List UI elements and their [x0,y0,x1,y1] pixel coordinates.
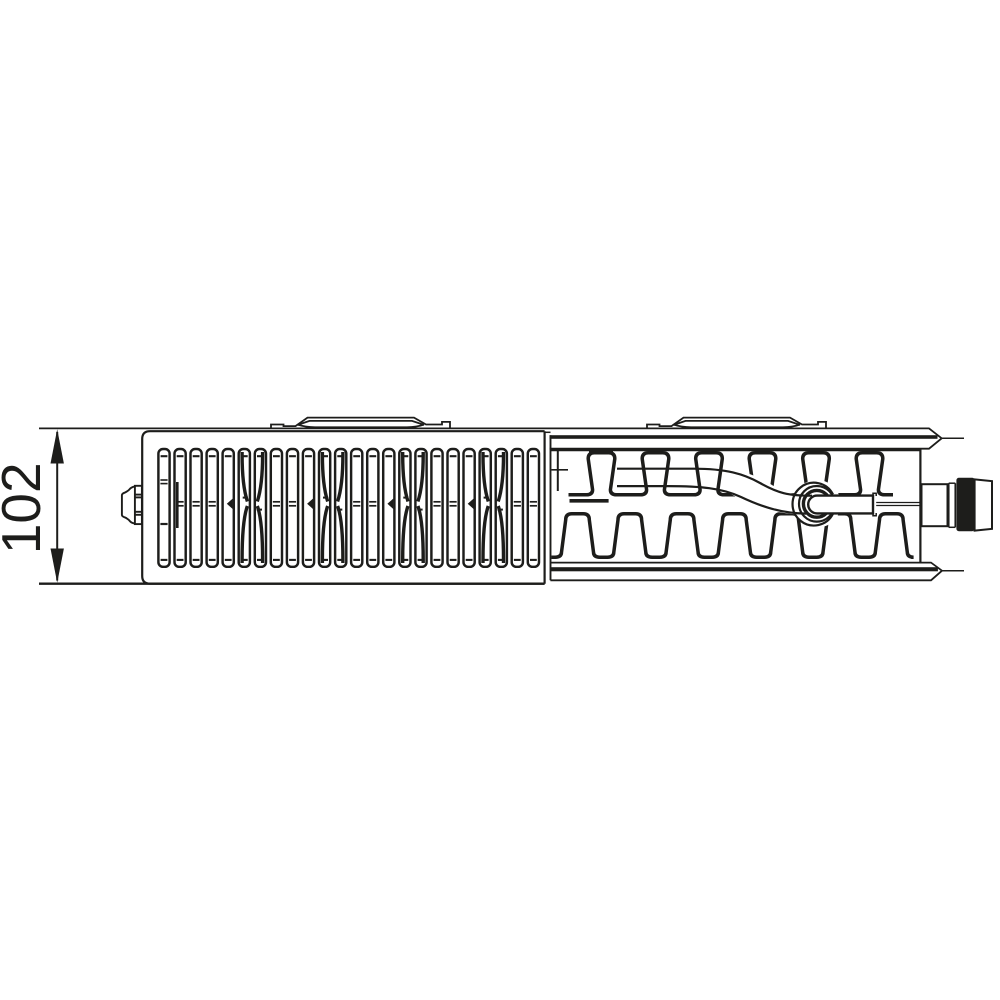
svg-text:102: 102 [0,462,52,554]
